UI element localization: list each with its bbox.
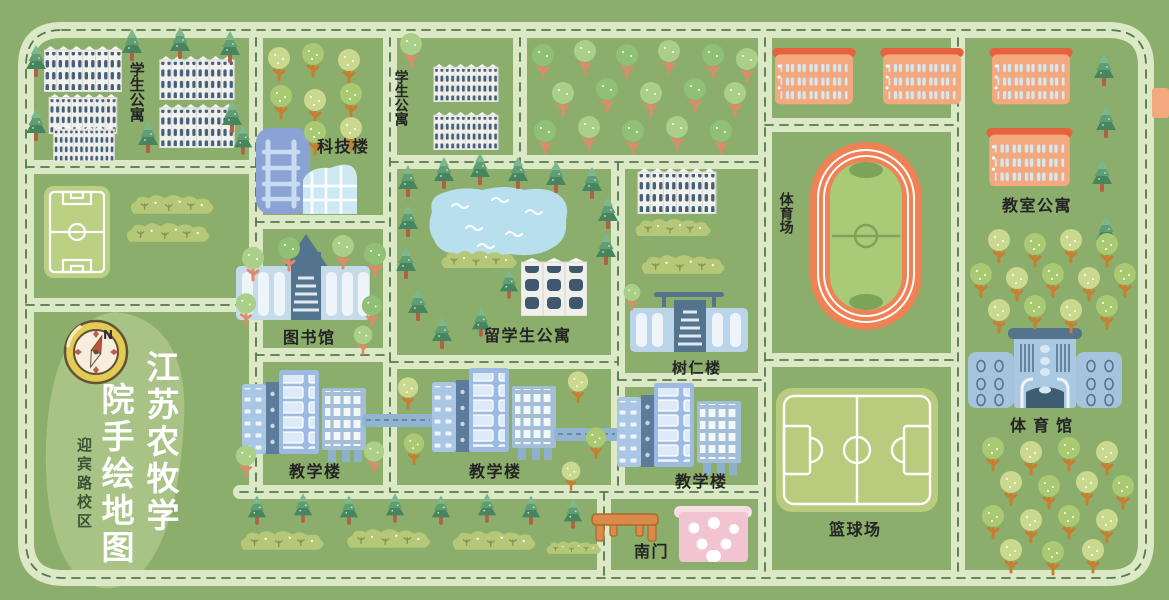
label-classroom-apartments: 教室公寓 [1002, 197, 1072, 215]
shuren-building [630, 292, 748, 352]
label-shuren-building: 树仁楼 [672, 360, 722, 377]
teaching-building-east [617, 383, 741, 475]
lake [429, 187, 567, 257]
gymnasium-building [968, 328, 1122, 408]
map-subtitle: 迎宾路校区 [74, 437, 95, 532]
label-basketball-court: 篮球场 [829, 521, 882, 539]
map-title-column-1: 江苏农牧学 [144, 350, 177, 535]
label-gymnasium: 体育馆 [1010, 417, 1079, 435]
map-title-column-2: 院手绘地图 [99, 382, 132, 567]
compass-north-label: N [103, 328, 113, 342]
stadium-track [810, 142, 922, 330]
label-south-gate: 南门 [634, 543, 669, 561]
label-science-building: 科技楼 [317, 138, 370, 156]
label-student-apartments-n: 学生公寓 [392, 70, 408, 126]
label-stadium: 体育场 [777, 192, 793, 234]
label-library: 图书馆 [283, 329, 336, 347]
label-teaching-building-center: 教学楼 [469, 463, 522, 481]
south-gate-bench [592, 514, 658, 541]
intl-student-apartment-building [521, 258, 587, 316]
student-apartments-n-buildings [434, 64, 498, 150]
south-gate-building [674, 506, 752, 562]
label-teaching-building-west: 教学楼 [289, 463, 342, 481]
basketball-court-field [776, 388, 938, 512]
soccer-field [44, 186, 110, 278]
campus-map: 学生公寓 学生公寓 科技楼 图书馆 留学生公寓 树仁楼 教学楼 教学楼 教学楼 … [0, 0, 1169, 600]
label-intl-student-apartments: 留学生公寓 [484, 327, 572, 345]
dormitory-east-building [638, 168, 716, 214]
compass-icon [65, 321, 127, 383]
edge-building-fragment [1152, 88, 1169, 118]
label-teaching-building-east: 教学楼 [675, 473, 728, 491]
teaching-building-center [432, 368, 556, 460]
footbridge-west [362, 414, 434, 427]
label-student-apartments-nw: 学生公寓 [128, 62, 145, 122]
